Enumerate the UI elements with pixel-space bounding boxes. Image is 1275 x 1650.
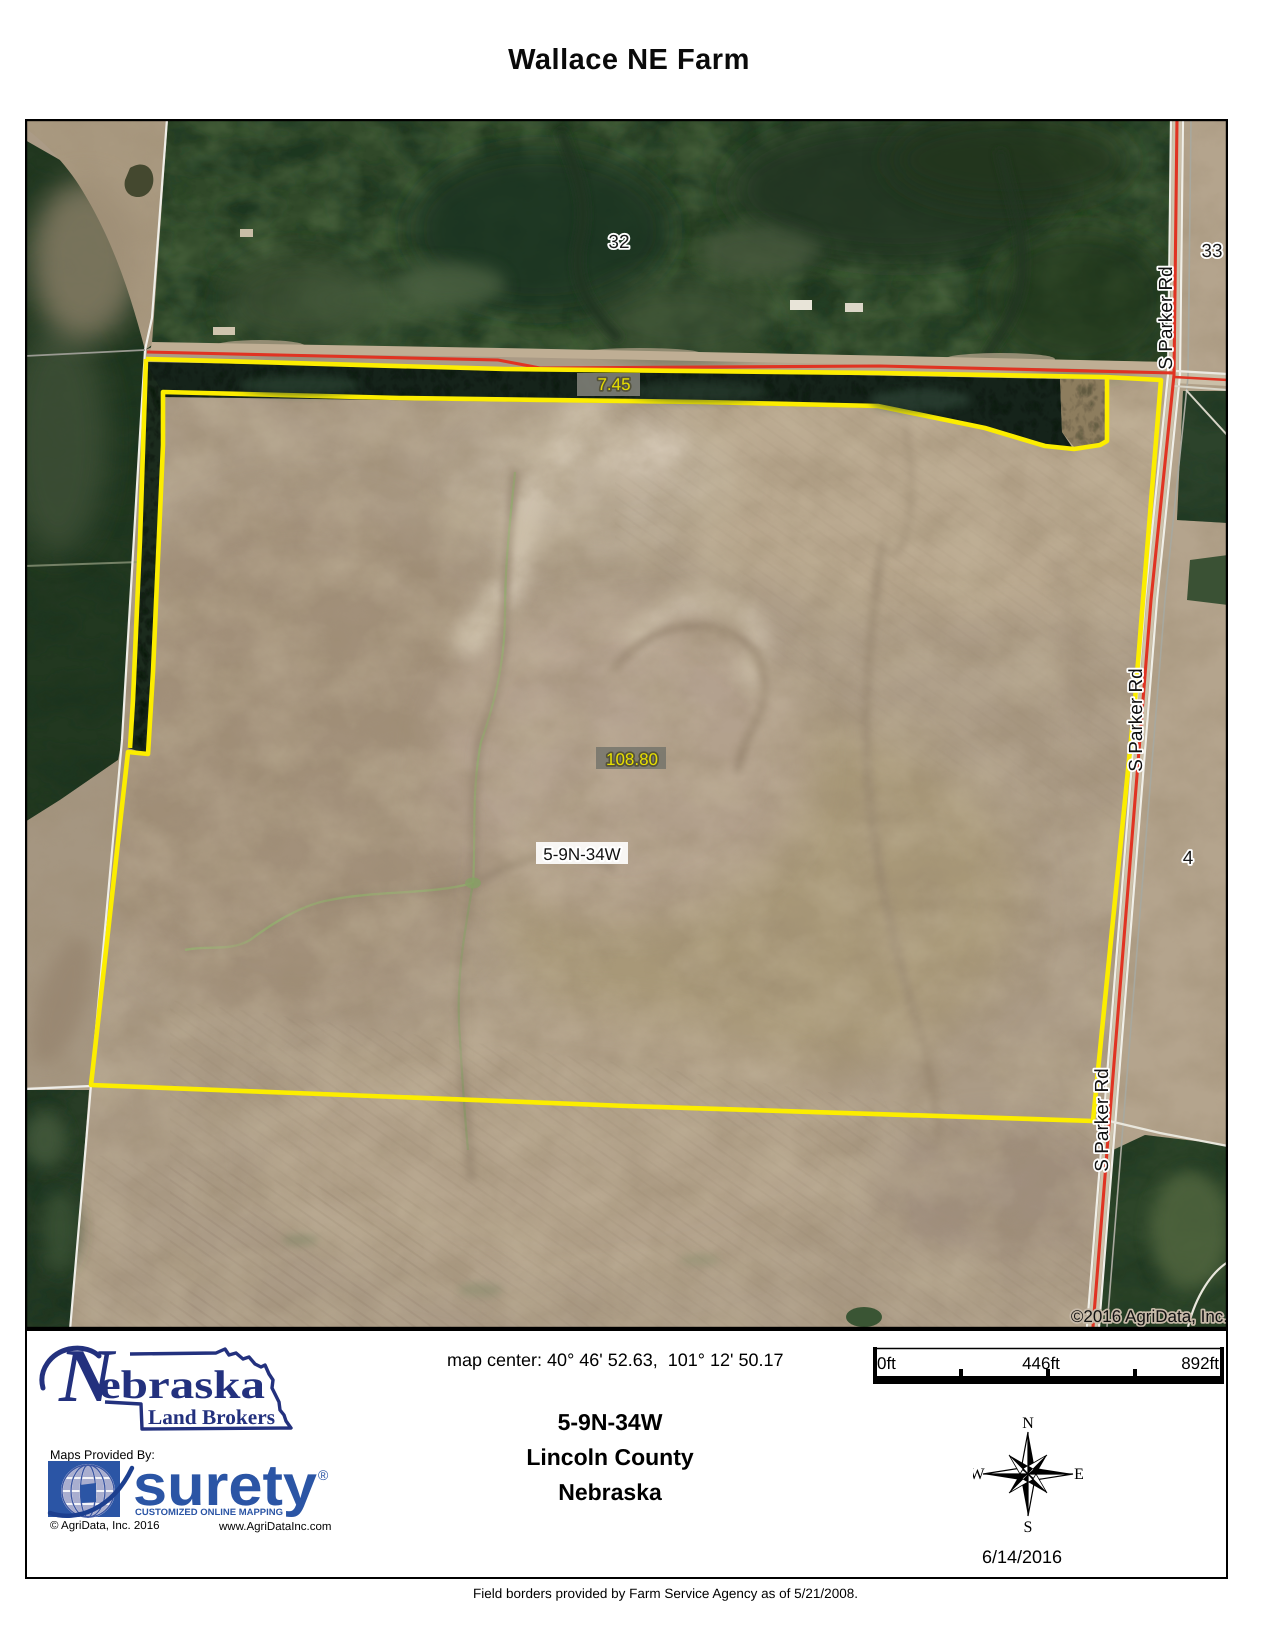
svg-text:ebraska: ebraska bbox=[99, 1362, 265, 1407]
svg-text:5-9N-34W: 5-9N-34W bbox=[543, 845, 620, 864]
svg-text:S Parker Rd: S Parker Rd bbox=[1092, 1068, 1113, 1171]
svg-text:446ft: 446ft bbox=[1022, 1354, 1060, 1373]
svg-text:®: ® bbox=[318, 1467, 329, 1483]
svg-text:33: 33 bbox=[1201, 241, 1222, 262]
svg-text:S: S bbox=[1024, 1519, 1033, 1536]
svg-text:E: E bbox=[1074, 1466, 1083, 1483]
svg-text:0ft: 0ft bbox=[877, 1354, 896, 1373]
svg-text:CUSTOMIZED ONLINE MAPPING: CUSTOMIZED ONLINE MAPPING bbox=[135, 1507, 283, 1517]
svg-text:4: 4 bbox=[1183, 848, 1194, 869]
svg-text:N: N bbox=[1022, 1416, 1034, 1432]
svg-text:Land Brokers: Land Brokers bbox=[148, 1405, 275, 1429]
svg-text:32: 32 bbox=[608, 232, 629, 253]
svg-text:S Parker Rd: S Parker Rd bbox=[1126, 668, 1147, 771]
svg-text:892ft: 892ft bbox=[1181, 1354, 1219, 1373]
svg-text:W: W bbox=[973, 1466, 985, 1483]
svg-text:7.45: 7.45 bbox=[597, 375, 630, 394]
svg-text:108.80: 108.80 bbox=[606, 750, 658, 769]
svg-text:©2016 AgriData, Inc.: ©2016 AgriData, Inc. bbox=[1071, 1307, 1228, 1326]
svg-text:S Parker Rd: S Parker Rd bbox=[1156, 266, 1177, 369]
